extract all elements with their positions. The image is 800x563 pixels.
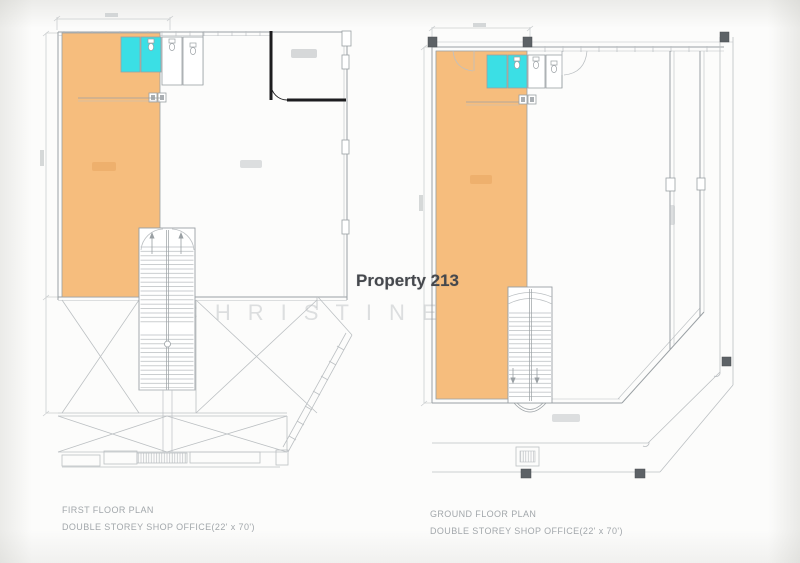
toilet-cell <box>487 55 507 88</box>
door-swing-arc <box>271 84 287 100</box>
first-floor-plan <box>40 13 352 467</box>
entrance-mat-ground <box>516 447 539 466</box>
toilets-ground <box>487 51 562 88</box>
open-deck-first <box>58 297 352 467</box>
illegible-room-label <box>291 49 317 58</box>
plan-title: GROUND FLOOR PLAN <box>430 506 623 523</box>
plan-subtitle: DOUBLE STOREY SHOP OFFICE(22' x 70') <box>62 519 255 536</box>
ground-floor-caption: GROUND FLOOR PLAN DOUBLE STOREY SHOP OFF… <box>430 506 623 540</box>
cross-bracing <box>62 300 139 413</box>
chamfered-edge <box>283 297 352 452</box>
door-swing-arc <box>562 51 587 75</box>
illegible-room-label <box>240 160 262 168</box>
window-marker <box>697 178 705 190</box>
illegible-room-label <box>552 414 580 422</box>
ground-floor-plan <box>419 23 733 478</box>
entrance-step-curve <box>514 403 546 412</box>
cross-bracing <box>196 300 317 413</box>
floorplan-document: CHRISTINE LIU <box>0 0 800 563</box>
illegible-room-label <box>92 162 116 171</box>
column-marker <box>722 357 731 366</box>
toilet-cell <box>121 37 140 72</box>
column-marker <box>523 37 532 47</box>
dark-walled-room <box>271 31 346 100</box>
plan-title: FIRST FLOOR PLAN <box>62 502 255 519</box>
illegible-room-label <box>470 175 492 184</box>
column-marker <box>521 469 531 478</box>
first-floor-caption: FIRST FLOOR PLAN DOUBLE STOREY SHOP OFFI… <box>62 502 255 536</box>
staircase-ground <box>508 287 552 412</box>
ground-strips-first <box>62 450 288 467</box>
cross-bracing <box>58 416 287 452</box>
illegible-dimension-label <box>105 13 118 17</box>
staircase-first <box>139 228 195 452</box>
illegible-dimension-label <box>670 205 675 225</box>
window-marker <box>666 178 675 191</box>
column-marker <box>720 32 729 42</box>
column-marker <box>428 37 437 47</box>
illegible-dimension-label <box>419 195 423 211</box>
plan-subtitle: DOUBLE STOREY SHOP OFFICE(22' x 70') <box>430 523 623 540</box>
illegible-dimension-label <box>40 150 44 166</box>
newel-post <box>165 341 171 347</box>
chamfer-hatch <box>289 346 344 440</box>
illegible-dimension-label <box>473 23 486 27</box>
column-marker <box>635 469 645 478</box>
property-label: Property 213 <box>356 271 459 291</box>
